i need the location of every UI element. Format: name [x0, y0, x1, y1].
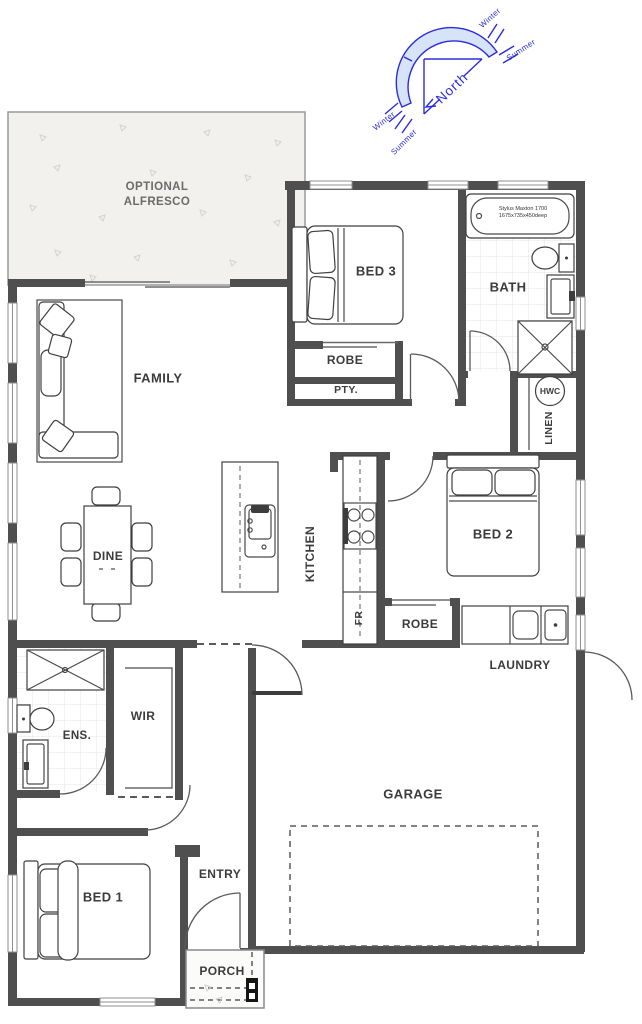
- laundry-exterior-door: [584, 652, 632, 700]
- porch-label: PORCH: [199, 964, 244, 978]
- dine-label: DINE: [93, 549, 123, 563]
- bed1-door: [145, 785, 190, 830]
- bed2-door: [388, 456, 433, 501]
- robe-bed2-label: ROBE: [402, 617, 438, 631]
- bed2-furniture: [447, 455, 539, 576]
- family-label: FAMILY: [134, 371, 183, 386]
- bed3-label: BED 3: [356, 264, 396, 279]
- wir-label: WIR: [131, 709, 156, 723]
- alfresco-label: OPTIONALALFRESCO: [124, 180, 190, 210]
- toilet-bowl: [532, 247, 558, 269]
- laundry-label: LAUNDRY: [489, 658, 550, 672]
- bath-label: BATH: [490, 280, 527, 295]
- wir-shelves: [125, 668, 172, 788]
- hwc-label: HWC: [540, 386, 560, 396]
- island-faucet: [251, 505, 269, 513]
- bed1-furniture: [24, 861, 150, 960]
- entry-label: ENTRY: [199, 867, 241, 881]
- porch-details: [186, 950, 264, 1008]
- pty-label: PTY.: [334, 384, 358, 396]
- ens-toilet-bowl: [30, 708, 54, 730]
- ens-label: ENS.: [63, 730, 91, 742]
- floor-plan: OPTIONALALFRESCO FAMILY DINE KITCHEN BED…: [0, 0, 642, 1024]
- linen-label: LINEN: [543, 411, 555, 445]
- kitchen-island: [222, 462, 278, 592]
- garage-label: GARAGE: [383, 787, 442, 802]
- garage-entry-door: [252, 691, 302, 695]
- bathtub-model-text: Stylus Maxton 17001675x735x450deep: [499, 206, 547, 220]
- fridge-label: FR: [353, 611, 365, 626]
- sofa: [37, 300, 122, 462]
- floor-plan-svg: [0, 0, 642, 1024]
- garage-car-space: [290, 826, 538, 946]
- robe-bed3-label: ROBE: [327, 353, 363, 367]
- north-arrow-tip: [426, 99, 436, 107]
- kitchen-label: KITCHEN: [303, 526, 317, 582]
- cooktop-knobs: [343, 508, 348, 544]
- bed2-label: BED 2: [473, 527, 513, 542]
- bed1-label: BED 1: [83, 890, 123, 905]
- laundry-bench: [462, 606, 568, 644]
